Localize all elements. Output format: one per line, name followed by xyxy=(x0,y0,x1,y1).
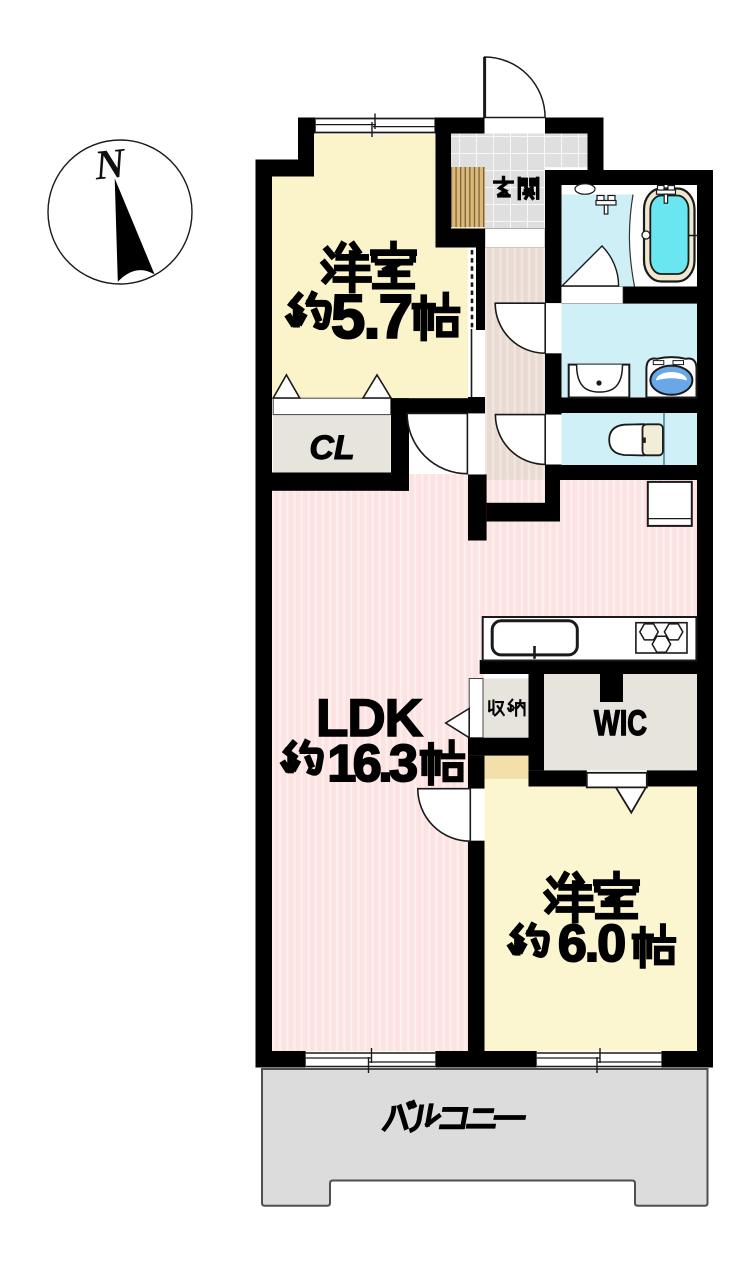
svg-text:6.0: 6.0 xyxy=(558,915,624,973)
svg-text:CL: CL xyxy=(309,429,354,467)
svg-text:16.3: 16.3 xyxy=(327,735,417,793)
svg-text:WIC: WIC xyxy=(594,704,647,743)
svg-text:5.7: 5.7 xyxy=(331,283,411,352)
